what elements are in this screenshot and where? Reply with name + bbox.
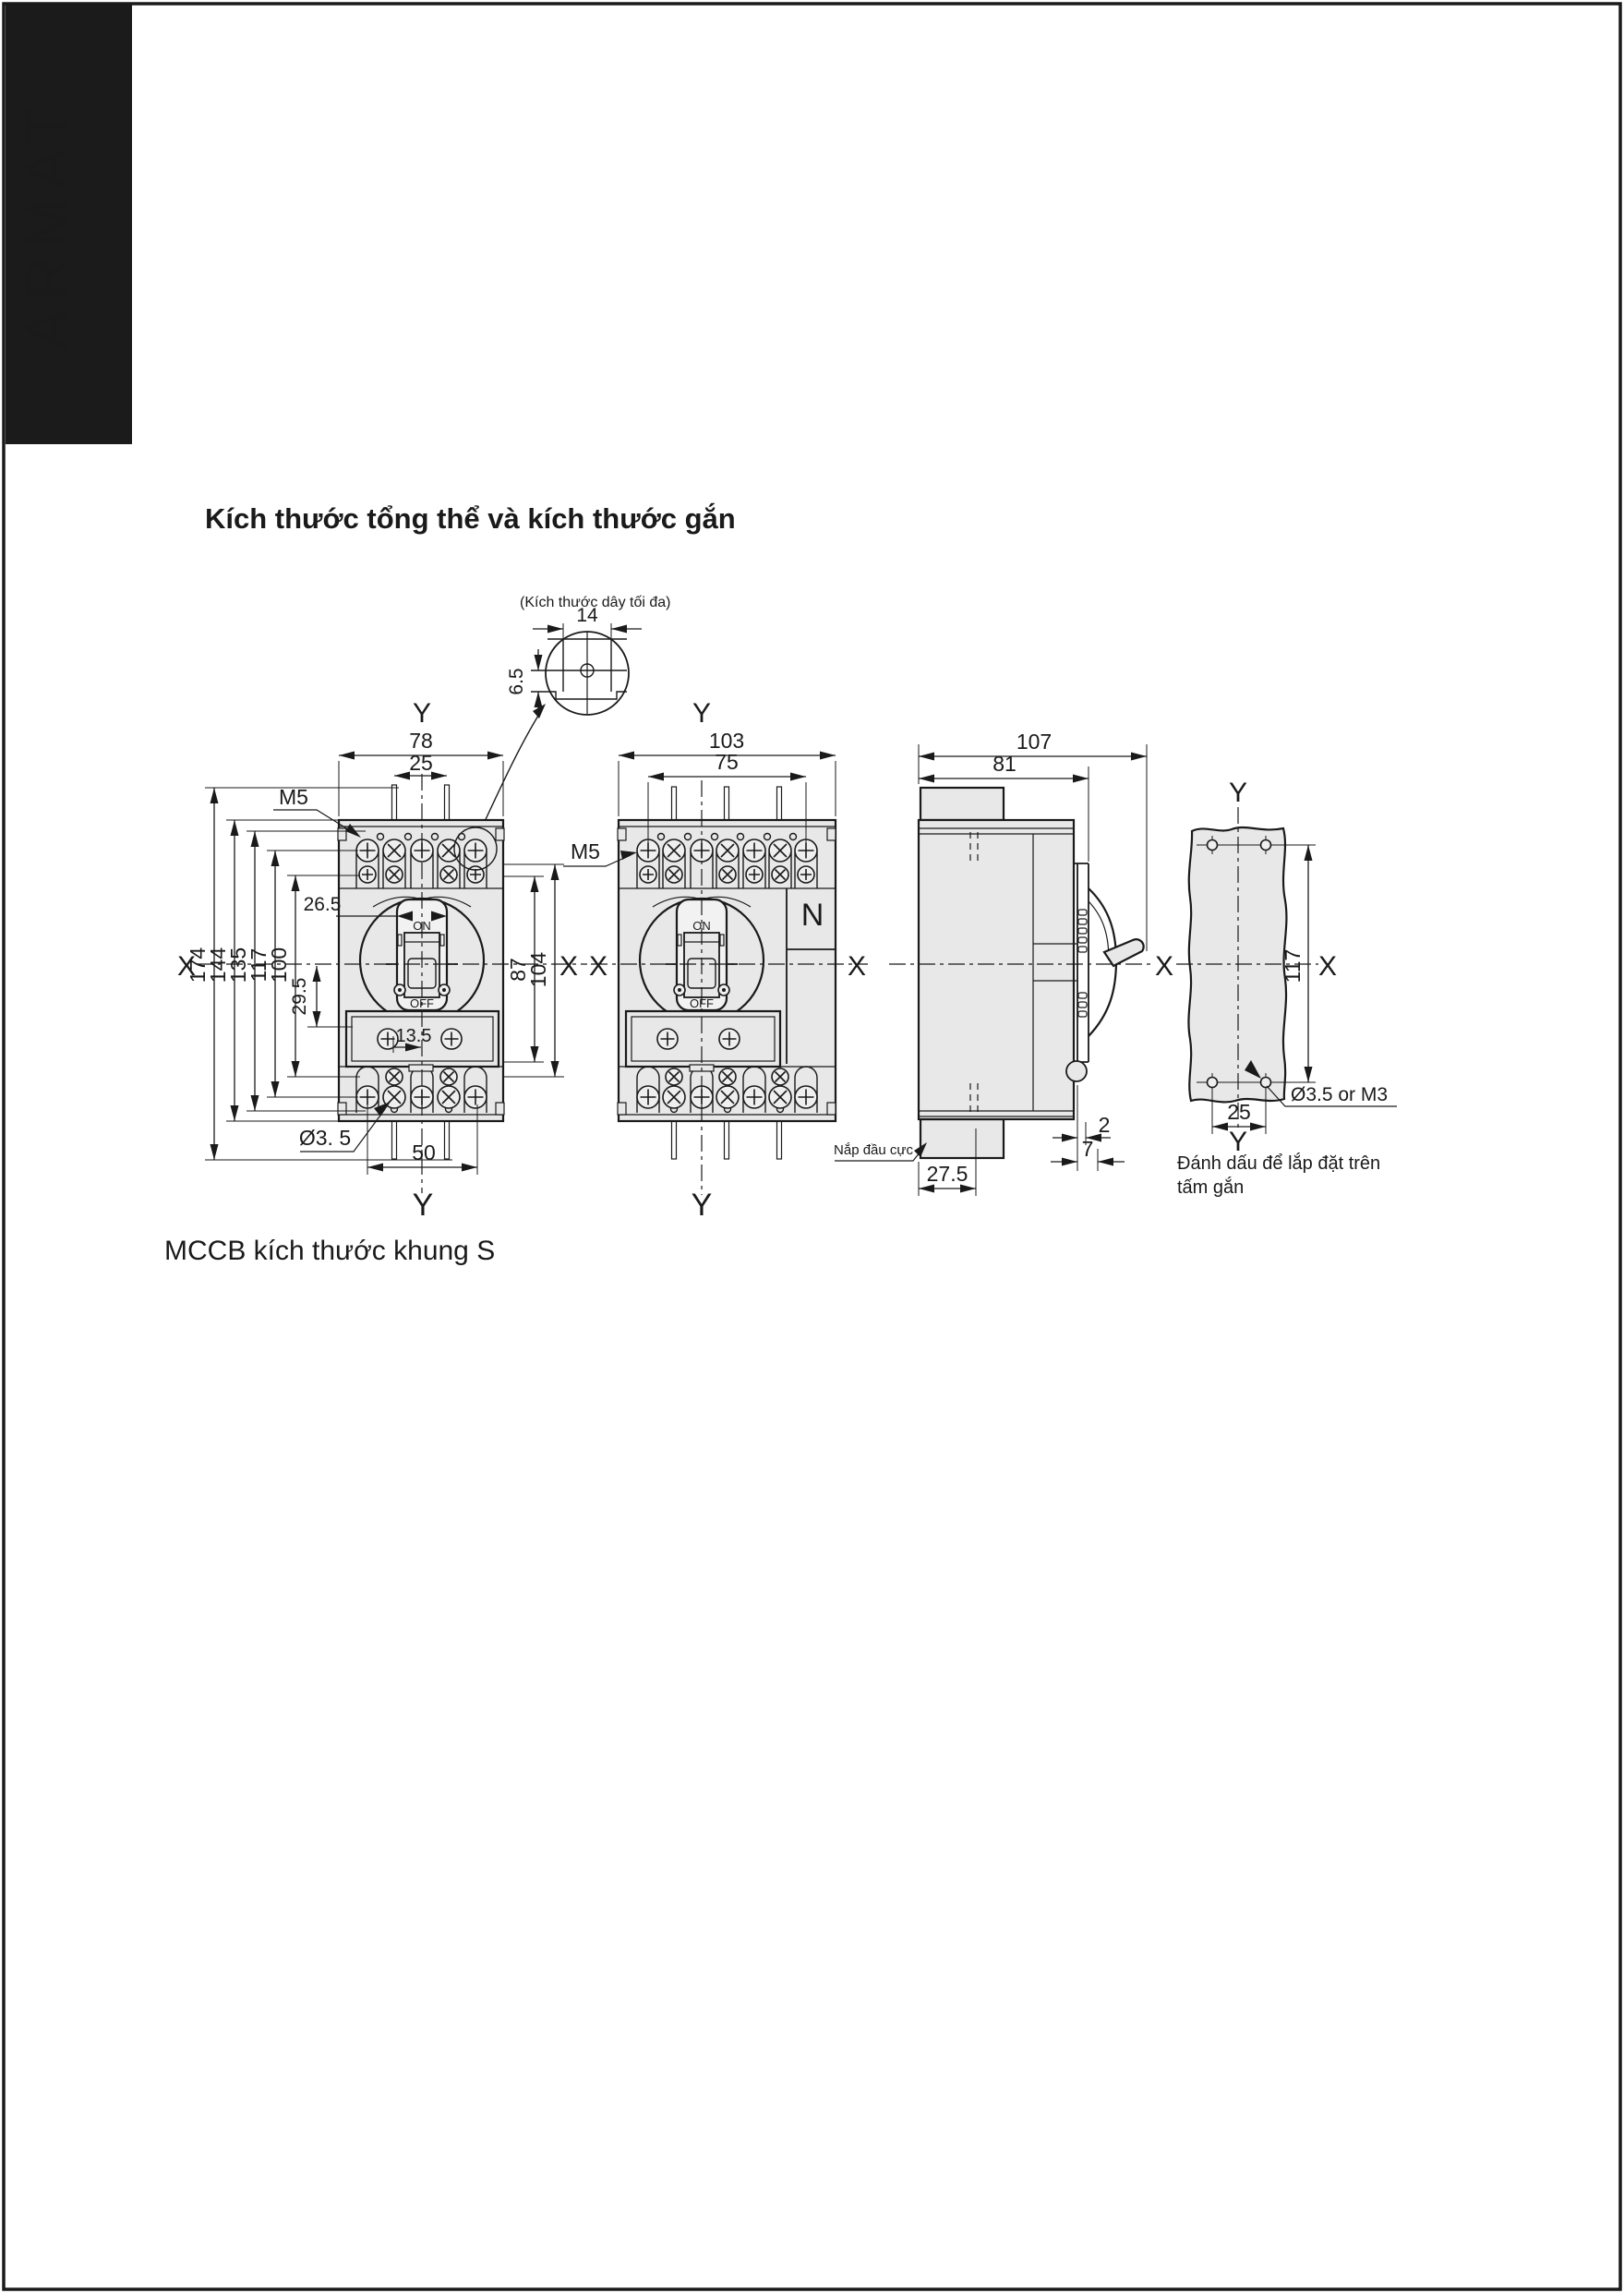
- svg-text:117: 117: [1281, 949, 1305, 984]
- axis-x-right: X: [559, 951, 578, 982]
- detail-leader-arrow-icon: [533, 704, 546, 718]
- plate-caption-line2: tấm gắn: [1177, 1177, 1244, 1198]
- svg-text:50: 50: [412, 1140, 436, 1165]
- svg-text:25: 25: [1227, 1100, 1251, 1124]
- terminal-cover-bottom: [920, 1119, 1004, 1158]
- svg-text:27.5: 27.5: [927, 1162, 968, 1186]
- dim-wire-pitch: 25: [394, 751, 447, 776]
- accessory-cover: [626, 1011, 780, 1071]
- svg-text:26.5: 26.5: [304, 894, 342, 915]
- callout-terminal-cover: Nắp đầu cực: [834, 1142, 927, 1161]
- side-view: 107 81 2 7 27.5 Nắp đầu cực: [834, 730, 1154, 1196]
- svg-text:2: 2: [1099, 1113, 1111, 1137]
- side-toggle-handle[interactable]: [1104, 939, 1144, 966]
- axis-x-left: X: [1155, 951, 1173, 982]
- svg-text:13.5: 13.5: [396, 1026, 432, 1046]
- svg-text:100: 100: [267, 947, 291, 983]
- page-border: [4, 4, 1620, 2289]
- axis-y-top: Y: [692, 698, 711, 729]
- plate-caption-line1: Đánh dấu để lắp đặt trên: [1177, 1153, 1380, 1174]
- svg-text:M5: M5: [571, 839, 600, 863]
- vent-louvers: [1078, 910, 1087, 1017]
- svg-text:75: 75: [715, 750, 739, 774]
- svg-text:104: 104: [526, 952, 550, 988]
- brand-banner: ARMAT: [6, 5, 132, 444]
- svg-text:78: 78: [409, 729, 433, 753]
- svg-text:Nắp đầu cực: Nắp đầu cực: [834, 1142, 913, 1158]
- svg-text:29.5: 29.5: [289, 978, 310, 1016]
- page-title: Kích thước tổng thể và kích thước gắn: [205, 501, 736, 535]
- front-view-4pole: N ON OFF 103 75: [563, 698, 868, 1223]
- svg-text:Ø3. 5: Ø3. 5: [299, 1126, 351, 1150]
- axis-x-left: X: [177, 951, 196, 982]
- svg-text:25: 25: [409, 751, 433, 775]
- front-view-3pole: ON OFF 26.5 13.5: [177, 698, 587, 1223]
- wire-size-detail: (Kích thước dây tối đa) 14 6.5: [481, 595, 671, 829]
- svg-text:M5: M5: [279, 785, 308, 809]
- svg-text:Ø3.5 or M3: Ø3.5 or M3: [1291, 1084, 1388, 1105]
- axis-y-top: Y: [1229, 778, 1247, 808]
- mounting-plate-view: 117 25 Ø3.5 or M3 Y Y X X Đánh dấu để lắ…: [1155, 778, 1397, 1198]
- svg-text:14: 14: [576, 605, 598, 626]
- dim-step: 7: [1051, 1137, 1125, 1171]
- axis-x-right: X: [1318, 951, 1337, 982]
- svg-text:7: 7: [1082, 1137, 1094, 1161]
- axis-y-top: Y: [413, 698, 431, 729]
- breaker-side-body: [919, 820, 1074, 1119]
- svg-text:107: 107: [1017, 730, 1052, 754]
- detail-leader-curve: [481, 711, 541, 829]
- neutral-pole-label: N: [801, 898, 824, 933]
- page-canvas: ARMAT Kích thước tổng thể và kích thước …: [0, 0, 1624, 2293]
- axis-y-bottom: Y: [692, 1188, 713, 1223]
- dim-wire-height: 6.5: [506, 649, 538, 713]
- svg-text:81: 81: [992, 752, 1017, 776]
- catalog-page: ARMAT Kích thước tổng thể và kích thước …: [0, 0, 1624, 2293]
- axis-x-left: X: [589, 951, 607, 982]
- svg-text:6.5: 6.5: [506, 668, 527, 694]
- axis-x-right: X: [848, 951, 866, 982]
- callout-terminal-screw: M5: [273, 785, 361, 838]
- axis-y-bottom: Y: [413, 1188, 434, 1223]
- brand-logo-text: ARMAT: [13, 99, 81, 349]
- terminal-cover-top: [920, 788, 1004, 820]
- figure-caption: MCCB kích thước khung S: [164, 1236, 495, 1266]
